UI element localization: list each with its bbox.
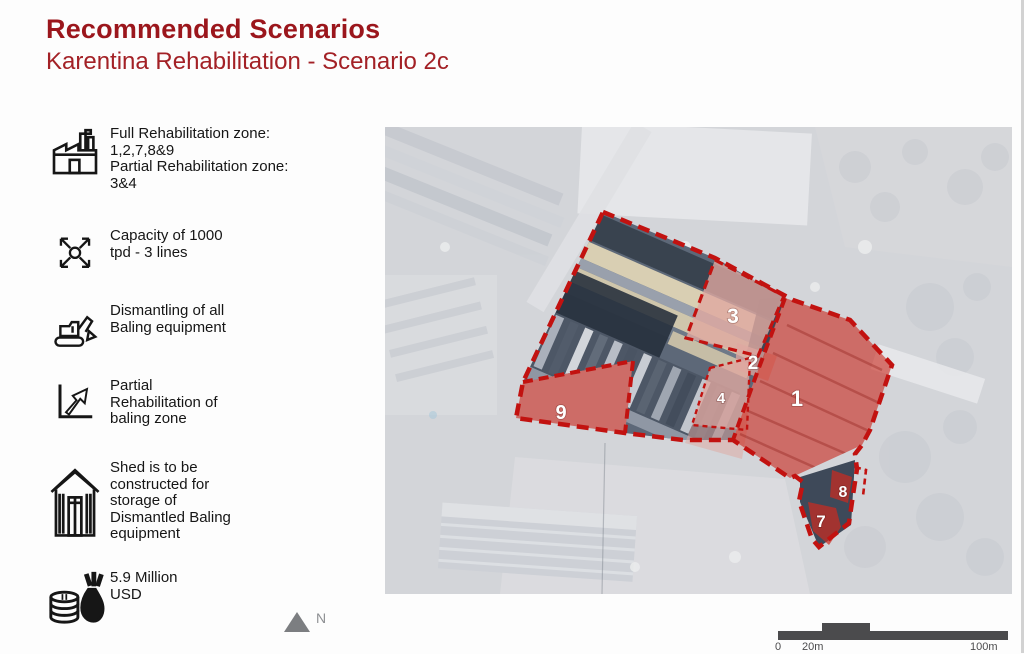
text-line: tpd - 3 lines	[110, 245, 223, 262]
zone-1-label: 1	[791, 386, 803, 411]
text-line: Full Rehabilitation zone:	[110, 126, 288, 143]
text-line: 5.9 Million	[110, 570, 178, 587]
legend-item-rehab-zones: Full Rehabilitation zone: 1,2,7,8&9 Part…	[40, 124, 288, 192]
scale-label-twenty: 20m	[802, 641, 823, 653]
factory-icon	[40, 124, 110, 180]
text-line: Rehabilitation of	[110, 395, 218, 412]
text-line: Baling equipment	[110, 320, 226, 337]
excavator-icon	[40, 301, 110, 353]
legend-item-text: Capacity of 1000 tpd - 3 lines	[110, 226, 223, 261]
text-line: Shed is to be	[110, 460, 231, 477]
legend-item-cost: 5.9 Million USD	[40, 568, 178, 626]
north-arrow-icon	[282, 610, 312, 634]
text-line: USD	[110, 587, 178, 604]
capacity-arrows-icon	[40, 226, 110, 278]
text-line: Dismantled Baling	[110, 510, 231, 527]
north-label: N	[316, 610, 326, 626]
text-line: Capacity of 1000	[110, 228, 223, 245]
legend-item-partial-rehab: Partial Rehabilitation of baling zone	[40, 376, 218, 428]
text-line: 1,2,7,8&9	[110, 143, 288, 160]
text-line: Dismantling of all	[110, 303, 226, 320]
site-map-svg: 3 2 4 1 9 8 7	[385, 127, 1012, 594]
site-map: 3 2 4 1 9 8 7	[385, 127, 1012, 594]
north-arrow: N	[282, 610, 342, 636]
scale-bar: 0 20m 100m	[770, 620, 1012, 654]
scale-segment	[778, 631, 822, 640]
legend-item-text: Shed is to be constructed for storage of…	[110, 458, 231, 543]
legend-item-shed: Shed is to be constructed for storage of…	[40, 458, 231, 544]
scale-label-hundred: 100m	[970, 641, 998, 653]
zone-7-label: 7	[816, 512, 825, 531]
scale-segment	[822, 623, 870, 640]
zone-8-label: 8	[839, 484, 848, 501]
page-subtitle: Karentina Rehabilitation - Scenario 2c	[46, 48, 449, 76]
legend-item-text: Partial Rehabilitation of baling zone	[110, 376, 218, 428]
text-line: Partial	[110, 378, 218, 395]
scale-label-zero: 0	[775, 641, 781, 653]
money-icon	[40, 568, 110, 626]
zone-2-label: 2	[748, 353, 759, 374]
page-title: Recommended Scenarios	[46, 14, 380, 45]
text-line: Partial Rehabilitation zone:	[110, 159, 288, 176]
zone-9-label: 9	[555, 402, 566, 424]
text-line: constructed for	[110, 477, 231, 494]
text-line: equipment	[110, 526, 231, 543]
legend-item-dismantling: Dismantling of all Baling equipment	[40, 301, 226, 353]
zone-4-label: 4	[717, 390, 726, 407]
shed-icon	[40, 458, 110, 544]
text-line: baling zone	[110, 411, 218, 428]
scale-segment	[870, 631, 1008, 640]
zone-3-label: 3	[727, 305, 739, 328]
text-line: storage of	[110, 493, 231, 510]
legend-item-text: Full Rehabilitation zone: 1,2,7,8&9 Part…	[110, 124, 288, 192]
legend-item-text: 5.9 Million USD	[110, 568, 178, 603]
text-line: 3&4	[110, 176, 288, 193]
map-blue-marker	[429, 411, 437, 419]
legend-item-capacity: Capacity of 1000 tpd - 3 lines	[40, 226, 223, 278]
partial-rehabilitation-icon	[40, 376, 110, 426]
legend-item-text: Dismantling of all Baling equipment	[110, 301, 226, 336]
